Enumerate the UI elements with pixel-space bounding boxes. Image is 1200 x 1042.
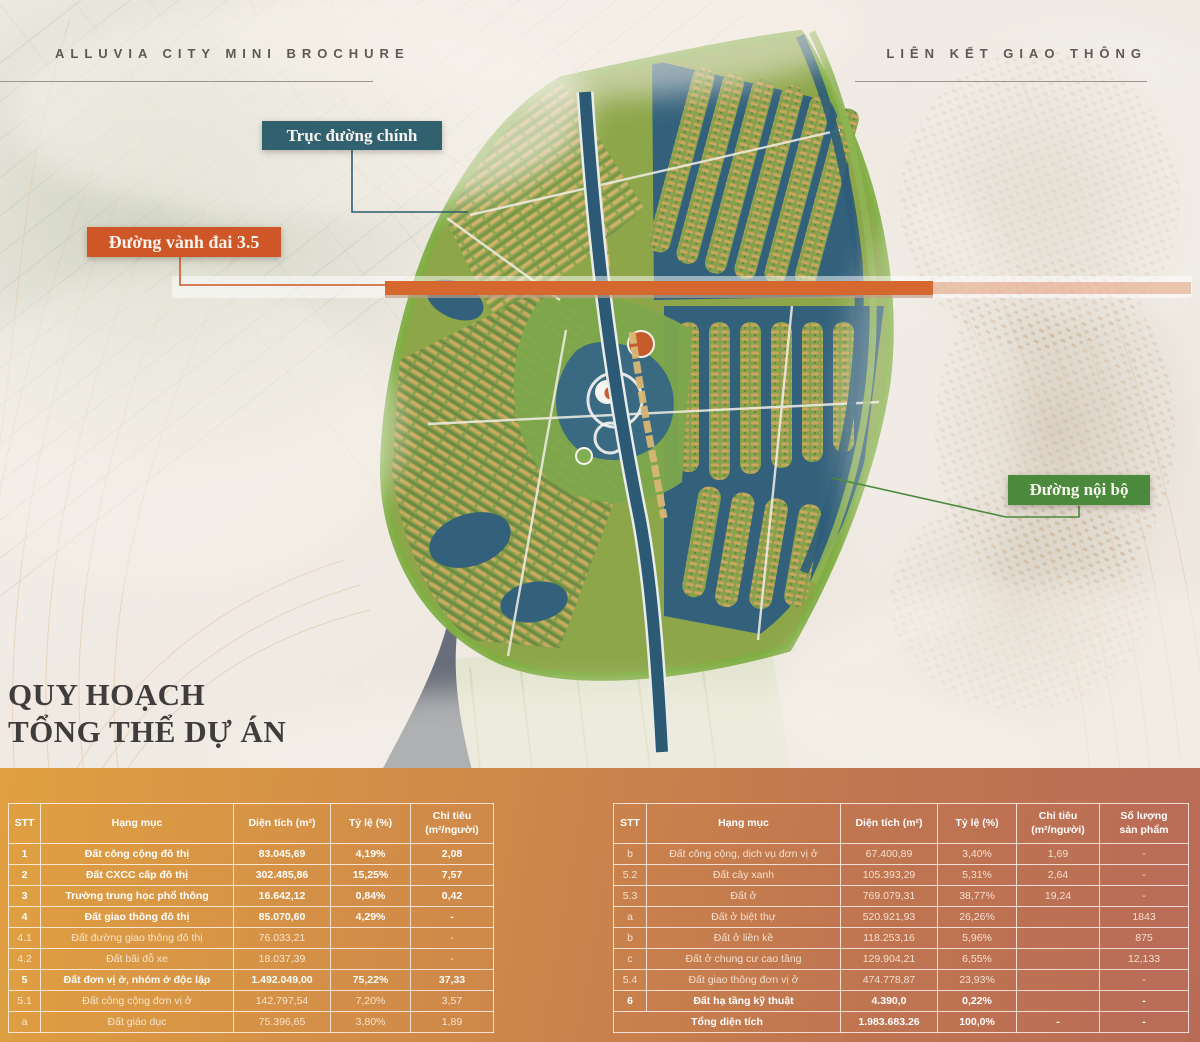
cell-category: Đất hạ tầng kỹ thuật [647, 991, 841, 1012]
cell-ratio: 5,31% [938, 865, 1017, 886]
cell-area: 4.390,0 [841, 991, 938, 1012]
cell-target [1017, 928, 1100, 949]
cell-area: 85.070,60 [234, 907, 331, 928]
cell-stt: 5.3 [614, 886, 647, 907]
cell-ratio: 3,80% [331, 1012, 411, 1033]
cell-stt: b [614, 844, 647, 865]
cell-area: 105.393,29 [841, 865, 938, 886]
cell-target: 1,69 [1017, 844, 1100, 865]
table-row: 2Đất CXCC cấp đô thị302.485,8615,25%7,57 [9, 865, 494, 886]
brochure-page: ALLUVIA CITY MINI BROCHURE LIÊN KẾT GIAO… [0, 0, 1200, 1042]
plan-table: STTHạng mụcDiện tích (m²)Tỷ lệ (%)Chỉ ti… [8, 803, 494, 1033]
cell-ratio: 6,55% [938, 949, 1017, 970]
cell-target [1017, 907, 1100, 928]
cell-ratio: 4,29% [331, 907, 411, 928]
callout-ring-road: Đường vành đai 3.5 [87, 227, 281, 257]
column-header: Tỷ lệ (%) [331, 804, 411, 844]
cell-ratio: 0,84% [331, 886, 411, 907]
cell-category: Đất CXCC cấp đô thị [41, 865, 234, 886]
cell-category: Đất giao thông đơn vị ở [647, 970, 841, 991]
land-use-table-left: STTHạng mụcDiện tích (m²)Tỷ lệ (%)Chỉ ti… [8, 803, 493, 1033]
cell-area: 142.797,54 [234, 991, 331, 1012]
cell-area: 474.778,87 [841, 970, 938, 991]
cell-category: Đất đơn vị ở, nhóm ở độc lập [41, 970, 234, 991]
table-row: aĐất ở biệt thự520.921,9326,26%1843 [614, 907, 1189, 928]
cell-quantity: 12,133 [1100, 949, 1189, 970]
cell-quantity: - [1100, 991, 1189, 1012]
cell-ratio: 23,93% [938, 970, 1017, 991]
cell-ratio: 15,25% [331, 865, 411, 886]
cell-target: 0,42 [411, 886, 494, 907]
cell-stt: 5.2 [614, 865, 647, 886]
cell-ratio: 38,77% [938, 886, 1017, 907]
cell-area: 769.079,31 [841, 886, 938, 907]
cell-target [1017, 991, 1100, 1012]
cell-category: Đất bãi đỗ xe [41, 949, 234, 970]
table-row: 5.2Đất cây xanh105.393,295,31%2,64- [614, 865, 1189, 886]
cell-category: Đất ở [647, 886, 841, 907]
callout-main-axis: Trục đường chính [262, 121, 442, 150]
cell-stt: 2 [9, 865, 41, 886]
table-row: 5Đất đơn vị ở, nhóm ở độc lập1.492.049,0… [9, 970, 494, 991]
cell-category: Đất ở liền kề [647, 928, 841, 949]
table-row: 4.2Đất bãi đỗ xe18.037,39- [9, 949, 494, 970]
cell-stt: 1 [9, 844, 41, 865]
cell-quantity: - [1100, 886, 1189, 907]
cell-quantity: - [1100, 970, 1189, 991]
column-header: Chỉ tiêu (m²/người) [411, 804, 494, 844]
cell-stt: b [614, 928, 647, 949]
callout-internal-road: Đường nội bộ [1008, 475, 1150, 505]
cell-target: 19,24 [1017, 886, 1100, 907]
table-row: bĐất công cộng, dịch vụ đơn vị ở67.400,8… [614, 844, 1189, 865]
cell-area: 18.037,39 [234, 949, 331, 970]
cell-stt: 4.2 [9, 949, 41, 970]
column-header: Hạng mục [647, 804, 841, 844]
cell-area: 16.642,12 [234, 886, 331, 907]
cell-ratio: 26,26% [938, 907, 1017, 928]
cell-ratio: 0,22% [938, 991, 1017, 1012]
cell-target: 1,89 [411, 1012, 494, 1033]
cell-target: - [411, 907, 494, 928]
cell-quantity: 875 [1100, 928, 1189, 949]
cell-ratio: 75,22% [331, 970, 411, 991]
cell-ratio: 3,40% [938, 844, 1017, 865]
cell-ratio: 4,19% [331, 844, 411, 865]
column-header: STT [9, 804, 41, 844]
cell-stt: a [9, 1012, 41, 1033]
cell-target: 7,57 [411, 865, 494, 886]
table-row: bĐất ở liền kề118.253,165,96%875 [614, 928, 1189, 949]
cell-area: 75.396,65 [234, 1012, 331, 1033]
table-row: 3Trường trung học phổ thông16.642,120,84… [9, 886, 494, 907]
cell-target: - [1017, 1012, 1100, 1033]
cell-area: 118.253,16 [841, 928, 938, 949]
cell-target: - [411, 949, 494, 970]
land-use-table-right: STTHạng mụcDiện tích (m²)Tỷ lệ (%)Chỉ ti… [613, 803, 1188, 1033]
cell-area: 302.485,86 [234, 865, 331, 886]
cell-area: 67.400,89 [841, 844, 938, 865]
cell-category: Đất đường giao thông đô thị [41, 928, 234, 949]
table-row: Tổng diện tích1.983.683.26100,0%-- [614, 1012, 1189, 1033]
cell-area: 83.045,69 [234, 844, 331, 865]
table-row: aĐất giáo dục75.396,653,80%1,89 [9, 1012, 494, 1033]
table-row: 5.3Đất ở769.079,3138,77%19,24- [614, 886, 1189, 907]
cell-category: Đất công cộng đô thị [41, 844, 234, 865]
cell-target: - [411, 928, 494, 949]
cell-target: 2,08 [411, 844, 494, 865]
cell-category: Đất ở biệt thự [647, 907, 841, 928]
cell-category: Đất ở chung cư cao tầng [647, 949, 841, 970]
cell-ratio [331, 928, 411, 949]
cell-target [1017, 949, 1100, 970]
cell-area: 520.921,93 [841, 907, 938, 928]
table-row: 4.1Đất đường giao thông đô thị76.033,21- [9, 928, 494, 949]
header-left-title: ALLUVIA CITY MINI BROCHURE [55, 46, 410, 61]
masterplan-map [0, 0, 1200, 770]
cell-category: Đất cây xanh [647, 865, 841, 886]
column-header: Chỉ tiêu (m²/người) [1017, 804, 1100, 844]
cell-ratio [331, 949, 411, 970]
cell-stt: a [614, 907, 647, 928]
cell-target [1017, 970, 1100, 991]
cell-ratio: 7,20% [331, 991, 411, 1012]
cell-target: 37,33 [411, 970, 494, 991]
column-header: Diện tích (m²) [841, 804, 938, 844]
cell-stt: 4.1 [9, 928, 41, 949]
header-rule-right [855, 81, 1147, 82]
cell-stt: 5.1 [9, 991, 41, 1012]
cell-target: 3,57 [411, 991, 494, 1012]
plan-table: STTHạng mụcDiện tích (m²)Tỷ lệ (%)Chỉ ti… [613, 803, 1189, 1033]
cell-category: Đất giáo dục [41, 1012, 234, 1033]
column-header: Số lượng sản phẩm [1100, 804, 1189, 844]
ring-road-band [385, 281, 933, 295]
header-rule-left [0, 81, 373, 82]
table-row: 1Đất công cộng đô thị83.045,694,19%2,08 [9, 844, 494, 865]
cell-quantity: - [1100, 844, 1189, 865]
table-row: 4Đất giao thông đô thị85.070,604,29%- [9, 907, 494, 928]
cell-category: Đất giao thông đô thị [41, 907, 234, 928]
header-right-title: LIÊN KẾT GIAO THÔNG [886, 46, 1147, 61]
cell-area: 1.492.049,00 [234, 970, 331, 991]
cell-area: 1.983.683.26 [841, 1012, 938, 1033]
cell-ratio: 5,96% [938, 928, 1017, 949]
column-header: Diện tích (m²) [234, 804, 331, 844]
section-title-line1: QUY HOẠCH [8, 676, 286, 713]
column-header: Tỷ lệ (%) [938, 804, 1017, 844]
cell-stt: 3 [9, 886, 41, 907]
cell-stt: 6 [614, 991, 647, 1012]
column-header: Hạng mục [41, 804, 234, 844]
cell-category: Trường trung học phổ thông [41, 886, 234, 907]
table-row: cĐất ở chung cư cao tầng129.904,216,55%1… [614, 949, 1189, 970]
table-row: 5.1Đất công cộng đơn vị ở142.797,547,20%… [9, 991, 494, 1012]
cell-area: 76.033,21 [234, 928, 331, 949]
table-row: 6Đất hạ tầng kỹ thuật4.390,00,22%- [614, 991, 1189, 1012]
cell-total-label: Tổng diện tích [614, 1012, 841, 1033]
cell-stt: c [614, 949, 647, 970]
cell-target: 2,64 [1017, 865, 1100, 886]
cell-quantity: 1843 [1100, 907, 1189, 928]
cell-stt: 4 [9, 907, 41, 928]
cell-ratio: 100,0% [938, 1012, 1017, 1033]
cell-category: Đất công cộng, dịch vụ đơn vị ở [647, 844, 841, 865]
column-header: STT [614, 804, 647, 844]
table-row: 5.4Đất giao thông đơn vị ở474.778,8723,9… [614, 970, 1189, 991]
section-title: QUY HOẠCH TỔNG THỂ DỰ ÁN [8, 676, 286, 750]
section-title-line2: TỔNG THỂ DỰ ÁN [8, 713, 286, 750]
cell-quantity: - [1100, 865, 1189, 886]
cell-category: Đất công cộng đơn vị ở [41, 991, 234, 1012]
cell-quantity: - [1100, 1012, 1189, 1033]
cell-stt: 5 [9, 970, 41, 991]
cell-stt: 5.4 [614, 970, 647, 991]
cell-area: 129.904,21 [841, 949, 938, 970]
